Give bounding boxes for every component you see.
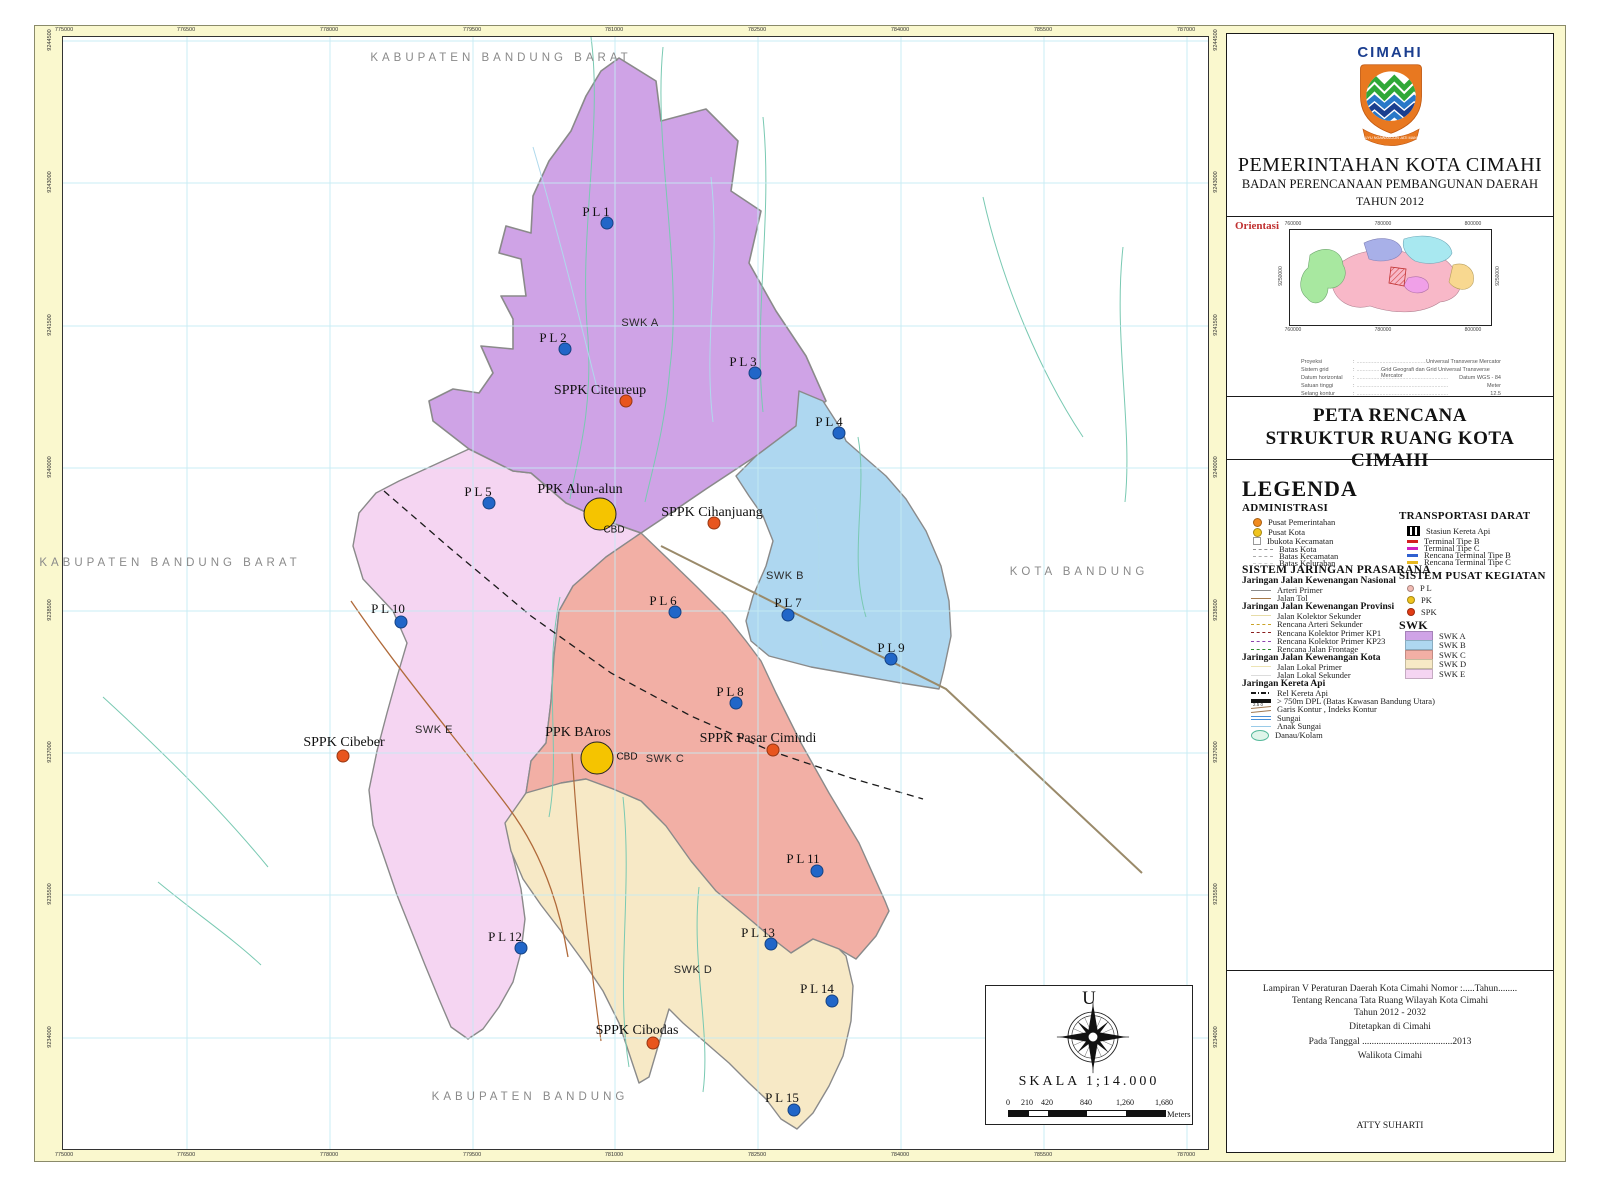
inset-northing-side: 9250000 xyxy=(1495,266,1501,285)
legend-title: LEGENDA xyxy=(1242,476,1358,502)
river-legend-icon xyxy=(1251,716,1271,720)
info-panel: CIMAHI SALUYU NGAWANGUN JATI MANDIRI PEM… xyxy=(1226,33,1554,1153)
lake-legend-icon xyxy=(1251,730,1269,741)
prasarana-legend-label: Danau/Kolam xyxy=(1275,730,1323,740)
transportasi-legend-label: Rencana Terminal Tipe C xyxy=(1424,557,1511,567)
easting-label-top: 787000 xyxy=(1177,27,1195,33)
legal-note-line: Tentang Rencana Tata Ruang Wilayah Kota … xyxy=(1227,996,1553,1006)
administrasi-legend-label: Pusat Pemerintahan xyxy=(1268,517,1335,527)
swk-legend-item: SWK E xyxy=(1405,669,1465,679)
northing-label-right: 9237000 xyxy=(1213,741,1219,762)
pusat-kegiatan-legend-label: P L xyxy=(1420,583,1432,593)
projection-label: Sistem grid xyxy=(1301,367,1353,373)
easting-label-bottom: 782500 xyxy=(748,1152,766,1158)
scale-tick-label: 1,680 xyxy=(1155,1098,1173,1107)
agency-year: TAHUN 2012 xyxy=(1227,194,1553,209)
easting-label-top: 775000 xyxy=(55,27,73,33)
inset-map-svg xyxy=(1290,230,1491,325)
projection-label: Selang kontur xyxy=(1301,391,1353,397)
projection-leader: ........................................… xyxy=(1357,359,1427,365)
northing-label-left: 9240000 xyxy=(47,456,53,477)
transportasi-legend-label: Stasiun Kereta Api xyxy=(1426,526,1490,536)
dashline-legend-icon xyxy=(1253,549,1273,550)
dot-legend-icon xyxy=(1407,585,1414,592)
inset-northing-side: 9250000 xyxy=(1278,266,1284,285)
projection-row: Datum horizontal:.......................… xyxy=(1301,375,1501,381)
swk-legend-label: SWK E xyxy=(1439,669,1465,679)
projection-colon: : xyxy=(1353,391,1355,397)
projection-colon: : xyxy=(1353,367,1355,373)
pusat-kegiatan-header: SISTEM PUSAT KEGIATAN xyxy=(1399,570,1546,582)
dot-legend-icon xyxy=(1253,518,1262,527)
dot-legend-icon xyxy=(1407,608,1415,616)
line-legend-icon xyxy=(1251,666,1271,667)
easting-label-top: 779500 xyxy=(463,27,481,33)
easting-label-top: 778000 xyxy=(320,27,338,33)
scale-bar xyxy=(1008,1110,1166,1117)
legal-note-line: Ditetapkan di Cimahi xyxy=(1227,1022,1553,1032)
scale-tick-label: 840 xyxy=(1080,1098,1092,1107)
scale-bar-segment xyxy=(1009,1111,1029,1116)
prasarana-legend-item: Danau/Kolam xyxy=(1251,730,1323,741)
easting-label-bottom: 775000 xyxy=(55,1152,73,1158)
map-title-line1: PETA RENCANA xyxy=(1227,405,1553,427)
northing-label-left: 9243000 xyxy=(47,171,53,192)
inset-easting-top: 800000 xyxy=(1465,221,1482,227)
map-title-line2: STRUKTUR RUANG KOTA CIMAHI xyxy=(1227,428,1553,472)
scale-tick-label: 210 xyxy=(1021,1098,1033,1107)
agency-subtitle: BADAN PERENCANAAN PEMBANGUNAN DAERAH xyxy=(1227,177,1553,192)
line-legend-icon xyxy=(1251,598,1271,599)
northing-label-right: 9244500 xyxy=(1213,29,1219,50)
orientasi-label: Orientasi xyxy=(1235,220,1279,232)
scale-tick-label: 1,260 xyxy=(1116,1098,1134,1107)
northing-label-left: 9244500 xyxy=(47,29,53,50)
pusat-kegiatan-legend-label: SPK xyxy=(1421,607,1437,617)
scale-bar-segment xyxy=(1048,1111,1087,1116)
inset-easting-top: 760000 xyxy=(1285,221,1302,227)
northing-label-right: 9234000 xyxy=(1213,1026,1219,1047)
legal-note-line: ATTY SUHARTI xyxy=(1227,1121,1553,1131)
projection-leader: ........................................… xyxy=(1357,375,1460,381)
projection-row: Satuan tinggi:..........................… xyxy=(1301,383,1501,389)
northing-label-right: 9238500 xyxy=(1213,599,1219,620)
easting-label-bottom: 778000 xyxy=(320,1152,338,1158)
northing-label-right: 9240000 xyxy=(1213,456,1219,477)
northing-label-right: 9235500 xyxy=(1213,883,1219,904)
scale-tick-label: 420 xyxy=(1041,1098,1053,1107)
inset-easting-bottom: 760000 xyxy=(1285,327,1302,333)
scale-compass-box: U xyxy=(985,985,1193,1125)
legal-note-line: Lampiran V Peraturan Daerah Kota Cimahi … xyxy=(1227,984,1553,994)
inset-easting-top: 780000 xyxy=(1375,221,1392,227)
pusat-kegiatan-legend-item: SPK xyxy=(1407,607,1437,617)
projection-leader: ........................................… xyxy=(1357,391,1491,397)
line-legend-icon xyxy=(1251,615,1271,616)
projection-leader: ........................................… xyxy=(1357,367,1381,373)
cimahi-logo-icon: SALUYU NGAWANGUN JATI MANDIRI xyxy=(1358,61,1424,151)
scale-bar-segment xyxy=(1126,1111,1165,1116)
easting-label-top: 781000 xyxy=(605,27,623,33)
fill-legend-icon xyxy=(1405,669,1433,679)
dashline-legend-icon xyxy=(1251,649,1271,650)
projection-row: Selang kontur:..........................… xyxy=(1301,391,1501,397)
administrasi-header: ADMINISTRASI xyxy=(1242,502,1328,514)
dashline-legend-icon xyxy=(1251,624,1271,625)
projection-value: 12.5 xyxy=(1490,391,1501,397)
stream-legend-icon xyxy=(1251,726,1271,727)
dot-legend-icon xyxy=(1407,596,1415,604)
easting-label-bottom: 784000 xyxy=(891,1152,909,1158)
agency-title: PEMERINTAHAN KOTA CIMAHI xyxy=(1227,154,1553,177)
map-sheet-page: KABUPATEN BANDUNG BARATKABUPATEN BANDUNG… xyxy=(0,0,1600,1200)
projection-label: Proyeksi xyxy=(1301,359,1353,365)
northing-label-left: 9235500 xyxy=(47,883,53,904)
projection-colon: : xyxy=(1353,375,1355,381)
legal-note-line: Walikota Cimahi xyxy=(1227,1051,1553,1061)
projection-label: Datum horizontal xyxy=(1301,375,1353,381)
projection-value: Universal Transverse Mercator xyxy=(1426,359,1501,365)
dashline-legend-icon xyxy=(1251,641,1271,642)
dashline-legend-icon xyxy=(1253,556,1273,557)
compass-rose-icon xyxy=(1056,1000,1130,1074)
scale-bar-segment xyxy=(1087,1111,1126,1116)
legal-note-line: Tahun 2012 - 2032 xyxy=(1227,1008,1553,1018)
projection-row: Proyeksi:...............................… xyxy=(1301,359,1501,365)
projection-value: Meter xyxy=(1487,383,1501,389)
logo-wordmark: CIMAHI xyxy=(1227,44,1553,61)
easting-label-bottom: 785500 xyxy=(1034,1152,1052,1158)
inset-easting-bottom: 780000 xyxy=(1375,327,1392,333)
logo-motto: SALUYU NGAWANGUN JATI MANDIRI xyxy=(1358,136,1424,140)
projection-value: Datum WGS - 84 xyxy=(1459,375,1501,381)
projection-colon: : xyxy=(1353,383,1355,389)
easting-label-bottom: 779500 xyxy=(463,1152,481,1158)
scale-text: SKALA 1;14.000 xyxy=(1019,1074,1160,1090)
northing-label-left: 9234000 xyxy=(47,1026,53,1047)
easting-label-top: 782500 xyxy=(748,27,766,33)
line-legend-icon xyxy=(1251,675,1271,676)
northing-label-left: 9238500 xyxy=(47,599,53,620)
northing-label-left: 9241500 xyxy=(47,314,53,335)
easting-label-top: 785500 xyxy=(1034,27,1052,33)
northing-label-right: 9241500 xyxy=(1213,314,1219,335)
northing-label-left: 9237000 xyxy=(47,741,53,762)
pusat-kegiatan-legend-item: PK xyxy=(1407,595,1432,605)
easting-label-bottom: 776500 xyxy=(177,1152,195,1158)
inset-easting-bottom: 800000 xyxy=(1465,327,1482,333)
transportasi-legend-item: Stasiun Kereta Api xyxy=(1407,526,1490,536)
transportasi-header: TRANSPORTASI DARAT xyxy=(1399,510,1530,522)
scale-bar-segment xyxy=(1029,1111,1049,1116)
dashdot-legend-icon xyxy=(1251,692,1271,694)
dashline-legend-icon xyxy=(1251,632,1271,633)
scale-unit: Meters xyxy=(1167,1109,1191,1119)
orientation-inset-map xyxy=(1289,229,1492,326)
projection-colon: : xyxy=(1353,359,1355,365)
transportasi-legend-item: Rencana Terminal Tipe C xyxy=(1407,557,1511,567)
easting-label-top: 776500 xyxy=(177,27,195,33)
northing-label-right: 9243000 xyxy=(1213,171,1219,192)
administrasi-legend-item: Pusat Pemerintahan xyxy=(1253,517,1335,527)
scale-tick-label: 0 xyxy=(1006,1098,1010,1107)
line-legend-icon xyxy=(1251,590,1271,591)
panel-divider-4 xyxy=(1227,970,1553,971)
easting-label-top: 784000 xyxy=(891,27,909,33)
projection-leader: ........................................… xyxy=(1357,383,1487,389)
station-legend-icon xyxy=(1407,526,1420,536)
projection-label: Satuan tinggi xyxy=(1301,383,1353,389)
pusat-kegiatan-legend-label: PK xyxy=(1421,595,1432,605)
panel-divider-1 xyxy=(1227,216,1553,217)
dashbar-legend-icon xyxy=(1407,561,1418,564)
legal-note-line: Pada Tanggal ...........................… xyxy=(1227,1037,1553,1047)
easting-label-bottom: 781000 xyxy=(605,1152,623,1158)
pusat-kegiatan-legend-item: P L xyxy=(1407,583,1432,593)
easting-label-bottom: 787000 xyxy=(1177,1152,1195,1158)
